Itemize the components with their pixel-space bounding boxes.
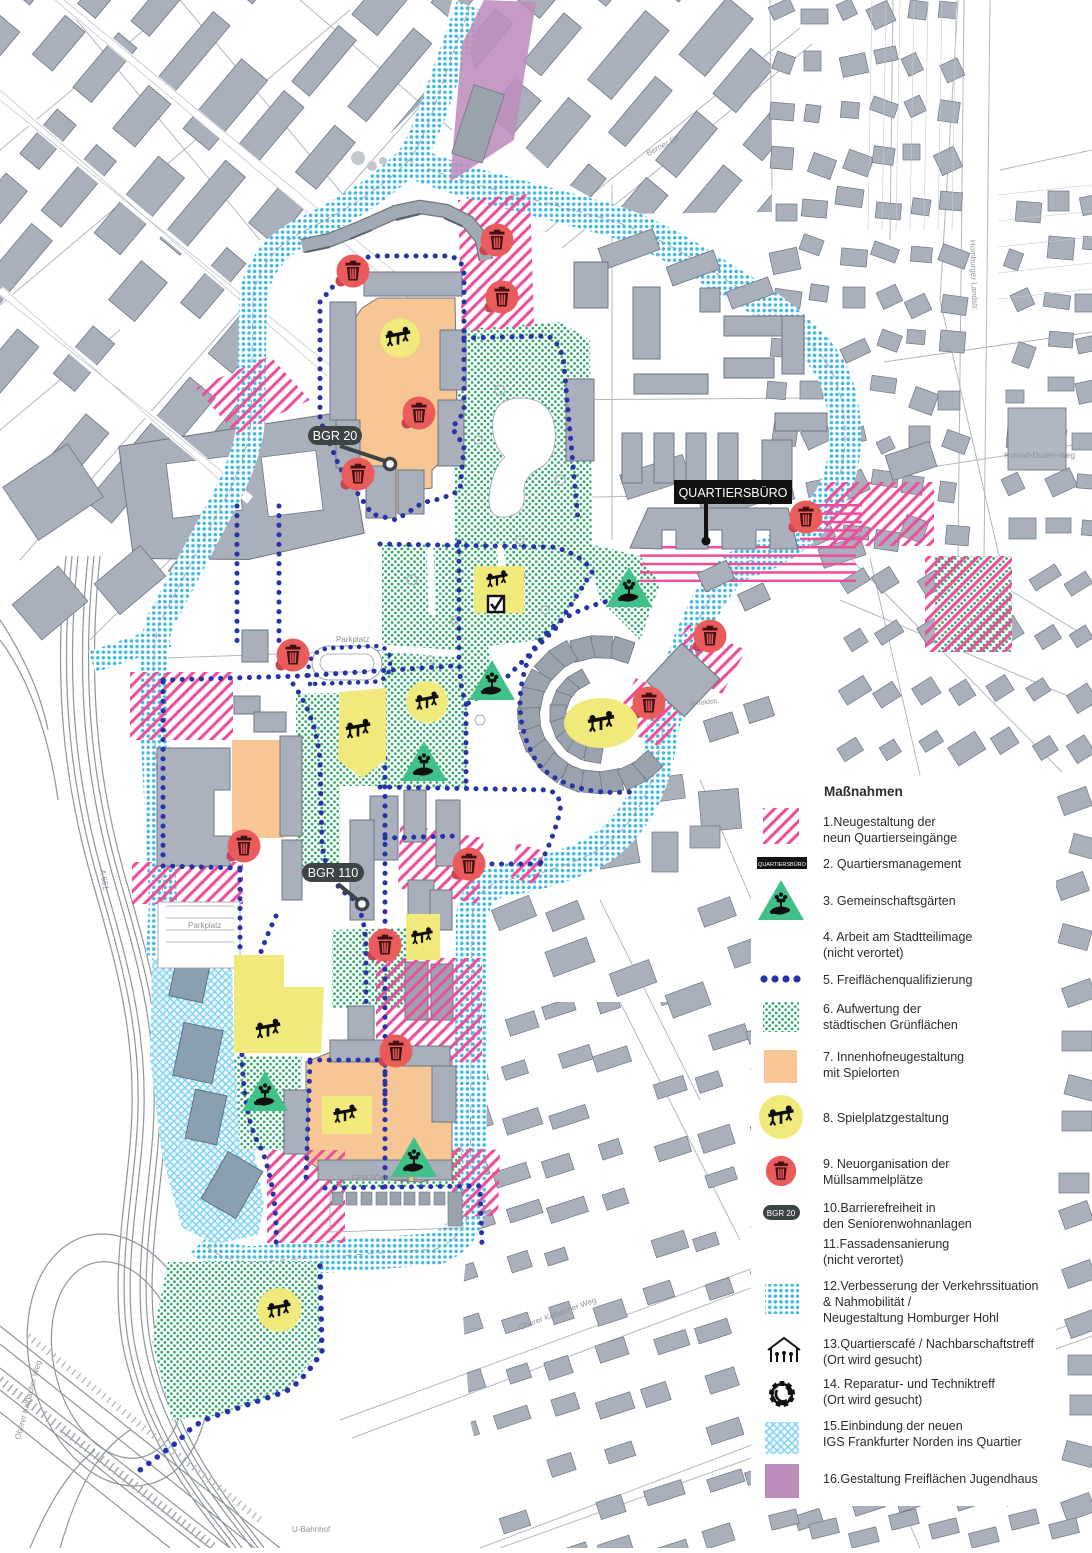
svg-text:Konrad-Duden-Weg: Konrad-Duden-Weg [1004, 451, 1075, 460]
svg-text:1.Neugestaltung der: 1.Neugestaltung der [823, 815, 936, 829]
svg-text:städtischen Grünflächen: städtischen Grünflächen [823, 1018, 958, 1032]
svg-text:(nicht verortet): (nicht verortet) [823, 1253, 904, 1267]
svg-text:(Ort wird gesucht): (Ort wird gesucht) [823, 1393, 922, 1407]
svg-text:5. Freiflächenqualifizierung: 5. Freiflächenqualifizierung [823, 973, 972, 987]
svg-text:15.Einbindung der neuen: 15.Einbindung der neuen [823, 1419, 963, 1433]
svg-text:12.Verbesserung der Verkehrssi: 12.Verbesserung der Verkehrssituation [823, 1279, 1038, 1293]
svg-text:13.Quartierscafé / Nachbarscha: 13.Quartierscafé / Nachbarschaftstreff [823, 1337, 1035, 1351]
svg-text:11.Fassadensanierung: 11.Fassadensanierung [823, 1237, 949, 1251]
svg-text:BGR 20: BGR 20 [313, 429, 358, 443]
svg-text:BGR 20: BGR 20 [767, 1209, 796, 1218]
svg-text:9. Neuorganisation der: 9. Neuorganisation der [823, 1157, 949, 1171]
svg-text:Neugestaltung Homburger Hohl: Neugestaltung Homburger Hohl [823, 1311, 999, 1325]
svg-text:QUARTIERSBÜRO: QUARTIERSBÜRO [758, 861, 807, 868]
svg-text:GEM SCHRAMMS: GEM SCHRAMMS [352, 1175, 411, 1182]
svg-text:8. Spielplatzgestaltung: 8. Spielplatzgestaltung [823, 1111, 949, 1125]
svg-text:7. Innenhofneugestaltung: 7. Innenhofneugestaltung [823, 1050, 964, 1064]
svg-text:14. Reparatur- und Techniktref: 14. Reparatur- und Techniktreff [823, 1377, 995, 1391]
svg-text:(nicht verortet): (nicht verortet) [823, 946, 904, 960]
svg-text:Maßnahmen: Maßnahmen [824, 784, 903, 799]
svg-text:neun Quartierseingänge: neun Quartierseingänge [823, 831, 957, 845]
svg-text:3. Gemeinschaftsgärten: 3. Gemeinschaftsgärten [823, 894, 956, 908]
svg-text:mit Spielorten: mit Spielorten [823, 1066, 899, 1080]
svg-text:(Ort wird gesucht): (Ort wird gesucht) [823, 1353, 922, 1367]
svg-text:IGS Frankfurter Norden ins Qua: IGS Frankfurter Norden ins Quartier [823, 1435, 1022, 1449]
svg-text:den Seniorenwohnanlagen: den Seniorenwohnanlagen [823, 1217, 972, 1231]
svg-text:16.Gestaltung Freiflächen Juge: 16.Gestaltung Freiflächen Jugendhaus [823, 1472, 1038, 1486]
svg-text:QUARTIERSBÜRO: QUARTIERSBÜRO [679, 486, 788, 500]
svg-text:Parkplatz: Parkplatz [336, 635, 369, 644]
svg-text:4. Arbeit am Stadtteilimage: 4. Arbeit am Stadtteilimage [823, 930, 972, 944]
svg-text:U-Bahnhof: U-Bahnhof [292, 1525, 331, 1534]
svg-text:2. Quartiersmanagement: 2. Quartiersmanagement [823, 857, 962, 871]
svg-text:BGR 110: BGR 110 [308, 866, 359, 880]
svg-text:Parkplatz: Parkplatz [188, 921, 221, 930]
svg-text:Müllsammelplätze: Müllsammelplätze [823, 1173, 923, 1187]
svg-text:6. Aufwertung der: 6. Aufwertung der [823, 1002, 921, 1016]
svg-text:10.Barrierefreiheit in: 10.Barrierefreiheit in [823, 1201, 936, 1215]
svg-text:& Nahmobilität /: & Nahmobilität / [823, 1295, 912, 1309]
